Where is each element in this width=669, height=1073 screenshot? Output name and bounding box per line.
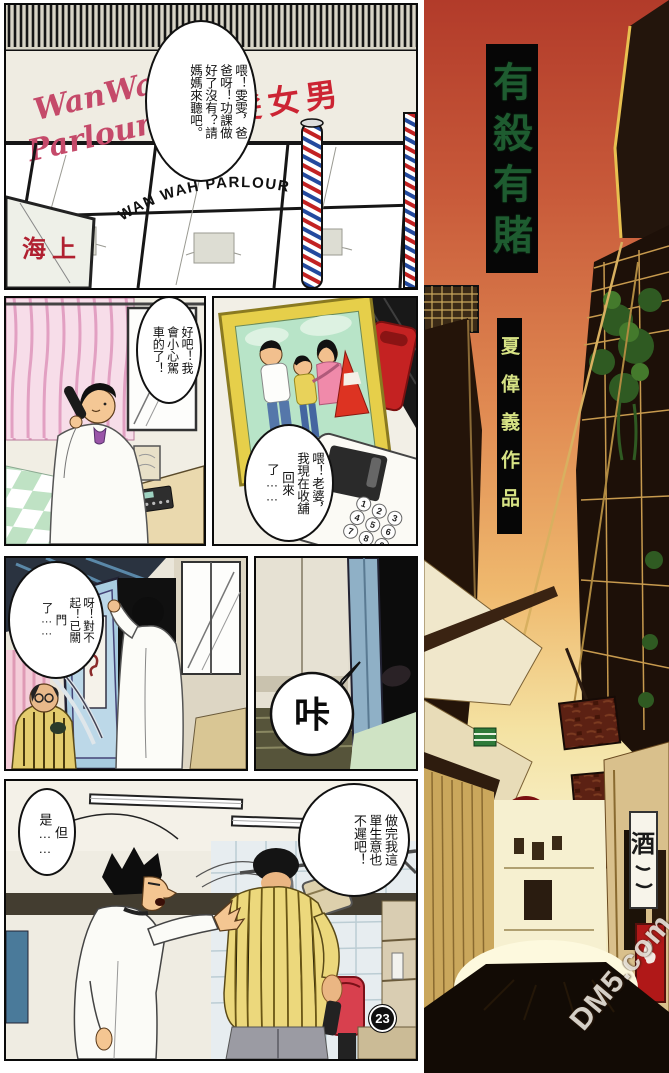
banner-text: 酒 (631, 829, 655, 858)
cover-author: 夏偉義作品 (497, 318, 522, 534)
speech-bubble-shop-door: 呀！對不起！已關門了…… (8, 561, 104, 679)
shanghai-window: 海上 (6, 197, 94, 288)
panel-door-close: 咔 (254, 556, 418, 771)
cover-art: 酒 (424, 0, 669, 1073)
panel-photo-phone: 1 2 3 4 5 6 7 8 9 喂！老婆，我現在收舖回來了…… (212, 296, 418, 546)
panel-argument: 但是…… 做完我這單生意也不遲吧！ (4, 779, 418, 1061)
page-number-badge: 23 (368, 1004, 397, 1033)
sfx-text: 咔 (294, 694, 330, 735)
door-close-art: 咔 (256, 558, 416, 769)
calligraphy-banner: 酒 (630, 812, 657, 908)
cover-title: 有殺有賭 (486, 44, 538, 273)
side-window (182, 562, 240, 674)
panel-phone-call: 好吧！我會小心駕車的了！ (4, 296, 206, 546)
barber-pole-edge-icon (404, 113, 416, 288)
speech-bubble-storefront: 喂！雯雯，爸爸呀！功課做好了沒有？請媽媽來聽吧。 (145, 20, 257, 182)
curtains (6, 298, 134, 440)
comic-page: WanWah Parlour 型髮女男 (0, 0, 669, 1073)
speech-bubble-but: 但是…… (18, 788, 76, 876)
mirror-strip (6, 931, 28, 1023)
speech-bubble-phone-call: 好吧！我會小心駕車的了！ (136, 296, 202, 404)
panel-storefront: WanWah Parlour 型髮女男 (4, 3, 418, 290)
speech-bubble-photo-phone: 喂！老婆，我現在收舖回來了…… (244, 424, 334, 542)
panel-shop-door: 呀！對不起！已關門了…… (4, 556, 248, 771)
green-sign (474, 728, 496, 746)
cover-panel: 酒 有殺有賭 夏偉義作品 (424, 0, 669, 1073)
window-chinese: 海上 (22, 235, 82, 263)
side-desk (190, 708, 246, 769)
speech-bubble-business: 做完我這單生意也不遲吧！ (298, 783, 410, 897)
barber-pole-icon (301, 119, 323, 288)
